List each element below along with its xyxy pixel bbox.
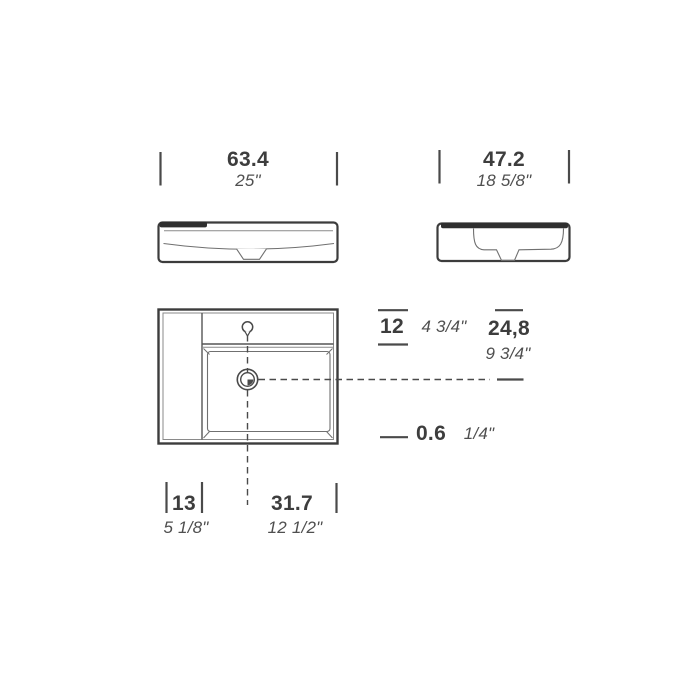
side-view — [438, 223, 570, 261]
dim-deck-imperial: 4 3/4" — [421, 318, 466, 335]
dim-width-metric: 63.4 — [227, 149, 269, 170]
dim-shelf-imperial: 5 1/8" — [163, 519, 208, 536]
side-view-body — [438, 224, 570, 262]
dim-depth-metric: 47.2 — [483, 149, 525, 170]
dim-depth-imperial: 18 5/8" — [477, 172, 532, 189]
tap-hole — [242, 322, 252, 332]
dim-drain-side-imperial: 12 1/2" — [268, 519, 323, 536]
dim-width-imperial: 25" — [235, 172, 261, 189]
front-view — [159, 222, 338, 262]
dim-drain-side-metric: 31.7 — [271, 493, 313, 514]
drawing-linework — [0, 0, 700, 700]
technical-drawing-canvas: 63.4 25" 47.2 18 5/8" 12 4 3/4" 24,8 9 3… — [0, 0, 700, 700]
plan-view — [159, 310, 491, 506]
side-view-top-edge — [441, 223, 568, 228]
dim-shelf-metric: 13 — [172, 493, 196, 514]
dim-rim-imperial: 1/4" — [464, 425, 494, 442]
front-view-shelf-edge — [160, 222, 208, 228]
dim-drain-back-imperial: 9 3/4" — [485, 345, 530, 362]
dim-deck-metric: 12 — [380, 316, 404, 337]
dim-drain-back-metric: 24,8 — [488, 318, 530, 339]
dim-rim-metric: 0.6 — [416, 423, 446, 444]
